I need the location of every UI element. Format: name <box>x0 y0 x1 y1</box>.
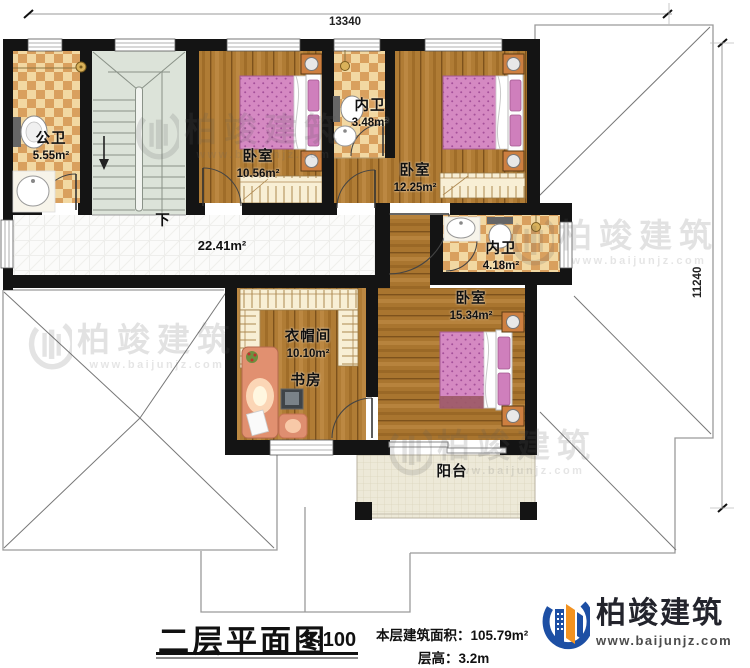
right-roof-hips <box>539 27 711 550</box>
room-label-ensuite2: 内卫 4.18m² <box>483 240 519 274</box>
window <box>1 220 13 268</box>
balcony-column <box>355 502 372 520</box>
dimension-top-width: 13340 <box>329 16 361 28</box>
plan-scale: 1:100 <box>305 629 356 652</box>
room-label-bedroom2: 卧室 12.25m² <box>394 162 437 196</box>
balcony-sliding-door <box>389 442 506 453</box>
room-label-public-bath: 公卫 5.55m² <box>33 130 69 164</box>
window <box>227 39 300 51</box>
toilet-tank <box>487 217 513 224</box>
brand-name: 柏竣建筑 <box>596 596 732 632</box>
room-label-balcony: 阳台 <box>437 463 468 482</box>
hall-area-label: 22.41m² <box>198 238 246 255</box>
balcony-column <box>520 502 537 520</box>
shower-head <box>341 62 350 71</box>
cloakroom-wardrobe-right <box>338 310 358 366</box>
stair-stringer <box>136 87 143 211</box>
window <box>560 222 572 268</box>
room-label-ensuite1: 内卫 3.48m² <box>352 97 388 131</box>
room-label-bedroom1: 卧室 10.56m² <box>237 148 280 182</box>
brand-logo: 柏竣建筑 www.baijunjz.com <box>538 596 732 658</box>
stairs-down-label: 下 <box>155 212 171 231</box>
toilet-tank <box>333 96 340 122</box>
window <box>270 440 333 455</box>
window <box>115 39 175 51</box>
bedroom2-wardrobe <box>440 173 525 198</box>
bedroom2-lobby-floor <box>334 158 395 203</box>
brand-website: www.baijunjz.com <box>596 633 732 648</box>
dimension-right-height: 11240 <box>692 267 704 298</box>
cloakroom-wardrobe-top <box>240 289 358 310</box>
floor-plan-page: 柏竣建筑 www.baijunjz.com 柏竣建筑 www.baijunjz.… <box>0 0 750 668</box>
room-label-cloakroom: 衣帽间 10.10m² <box>285 328 332 362</box>
window <box>28 39 62 51</box>
room-label-study: 书房 <box>291 372 322 391</box>
toilet-tank <box>13 117 21 147</box>
window <box>425 39 502 51</box>
shower-head <box>532 223 541 232</box>
floor-height-info: 层高：3.2m <box>418 647 489 667</box>
hall-floor <box>13 215 375 275</box>
bedroom3-lobby-floor <box>390 215 430 290</box>
room-label-bedroom3: 卧室 15.34m² <box>450 290 493 324</box>
title-underline <box>156 652 358 655</box>
sink <box>447 218 475 238</box>
title-underline-2 <box>156 657 358 659</box>
window <box>334 39 380 51</box>
brand-logo-icon <box>538 596 590 658</box>
floor-area-info: 本层建筑面积：105.79m² <box>376 624 528 644</box>
